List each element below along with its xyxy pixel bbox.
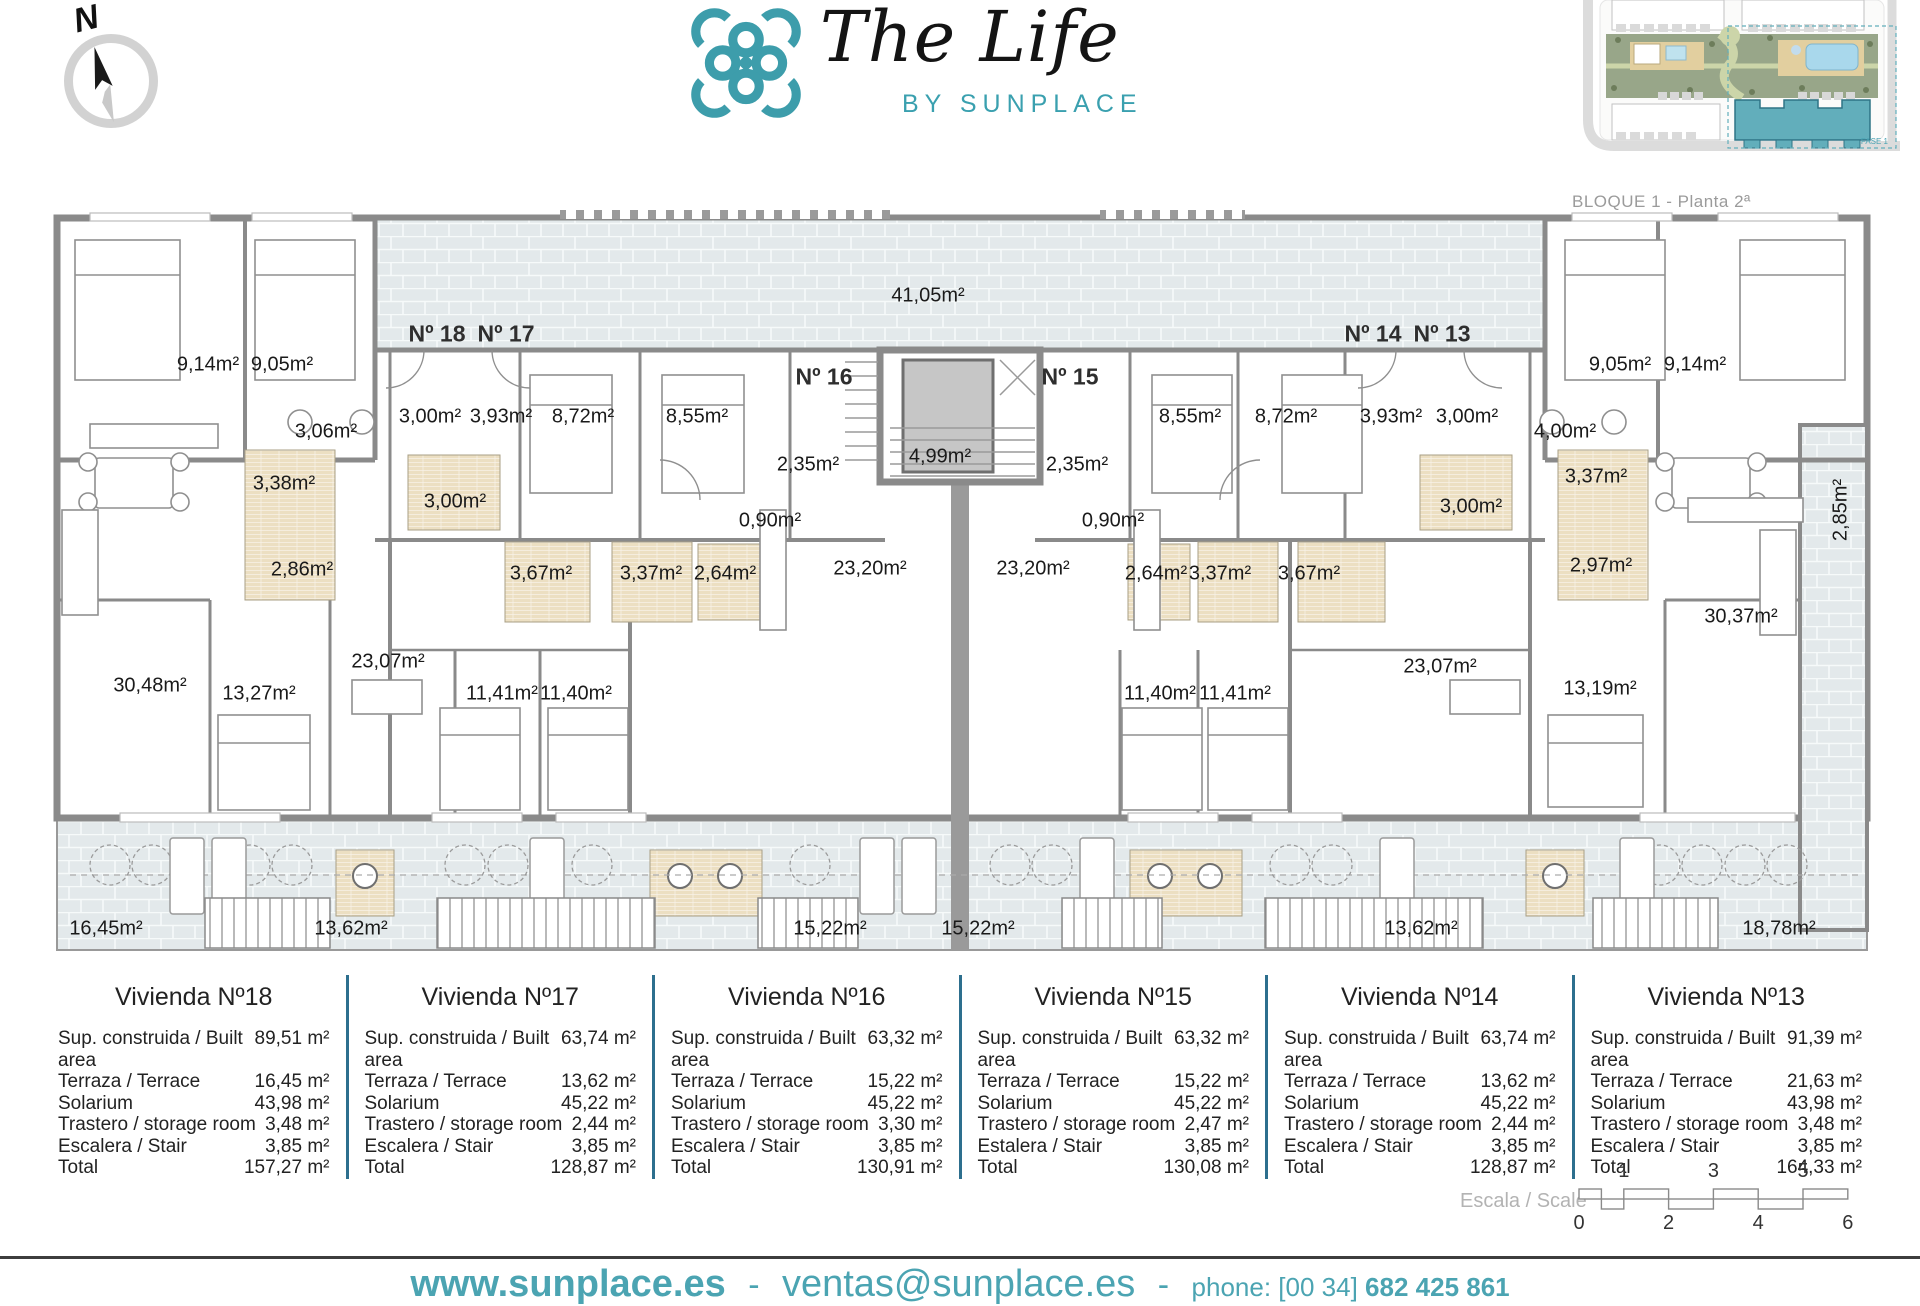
measure-label: Escalera / Stair bbox=[1591, 1136, 1720, 1158]
measure-label: Solarium bbox=[1284, 1093, 1359, 1115]
unit-title: Vivienda Nº18 bbox=[58, 983, 330, 1012]
unit-measure-row: Solarium43,98 m² bbox=[1591, 1093, 1863, 1115]
measure-value: 128,87 m² bbox=[550, 1157, 636, 1179]
scale-label: Escala / Scale bbox=[1460, 1190, 1587, 1213]
unit-measure-row: Terraza / Terrace21,63 m² bbox=[1591, 1071, 1863, 1093]
unit-summary-table: Vivienda Nº16Sup. construida / Built are… bbox=[652, 975, 959, 1179]
measure-label: Total bbox=[58, 1157, 98, 1179]
unit-measure-row: Solarium45,22 m² bbox=[1284, 1093, 1556, 1115]
measure-label: Terraza / Terrace bbox=[978, 1071, 1120, 1093]
footer: www.sunplace.es - ventas@sunplace.es - p… bbox=[0, 1263, 1920, 1306]
measure-label: Escalera / Stair bbox=[1284, 1136, 1413, 1158]
compass-needle-icon bbox=[48, 6, 168, 141]
measure-value: 3,85 m² bbox=[572, 1136, 636, 1158]
site-fase-label: FASE 1 bbox=[1861, 137, 1889, 146]
bloque-caption: BLOQUE 1 - Planta 2ª bbox=[1572, 192, 1751, 212]
logo-knot-icon bbox=[685, 2, 807, 124]
measure-label: Estalera / Stair bbox=[978, 1136, 1103, 1158]
measure-label: Trastero / storage room bbox=[1591, 1114, 1789, 1136]
measure-value: 63,32 m² bbox=[868, 1028, 943, 1071]
unit-measure-row: Solarium45,22 m² bbox=[671, 1093, 943, 1115]
measure-value: 91,39 m² bbox=[1787, 1028, 1862, 1071]
floor-plan-drawing bbox=[0, 210, 1920, 955]
unit-measure-row: Escalera / Stair3,85 m² bbox=[671, 1136, 943, 1158]
unit-measure-row: Solarium43,98 m² bbox=[58, 1093, 330, 1115]
unit-title: Vivienda Nº13 bbox=[1591, 983, 1863, 1012]
measure-value: 3,85 m² bbox=[265, 1136, 329, 1158]
measure-label: Escalera / Stair bbox=[365, 1136, 494, 1158]
unit-measure-row: Total157,27 m² bbox=[58, 1157, 330, 1179]
measure-label: Total bbox=[978, 1157, 1018, 1179]
scale-tick: 4 bbox=[1753, 1212, 1764, 1235]
measure-value: 16,45 m² bbox=[255, 1071, 330, 1093]
unit-title: Vivienda Nº14 bbox=[1284, 983, 1556, 1012]
measure-value: 130,91 m² bbox=[857, 1157, 943, 1179]
measure-label: Trastero / storage room bbox=[365, 1114, 563, 1136]
plan-side-terrace bbox=[1800, 425, 1867, 930]
unit-measure-row: Estalera / Stair3,85 m² bbox=[978, 1136, 1250, 1158]
measure-label: Sup. construida / Built area bbox=[1591, 1028, 1788, 1071]
unit-measure-row: Trastero / storage room2,44 m² bbox=[1284, 1114, 1556, 1136]
measure-value: 63,74 m² bbox=[561, 1028, 636, 1071]
measure-value: 2,44 m² bbox=[1491, 1114, 1555, 1136]
unit-measure-row: Sup. construida / Built area91,39 m² bbox=[1591, 1028, 1863, 1071]
plan-top-railing bbox=[560, 210, 890, 219]
footer-phone: phone: [00 34] 682 425 861 bbox=[1192, 1272, 1510, 1302]
measure-label: Escalera / Stair bbox=[671, 1136, 800, 1158]
measure-label: Total bbox=[671, 1157, 711, 1179]
measure-value: 2,47 m² bbox=[1185, 1114, 1249, 1136]
measure-value: 3,85 m² bbox=[878, 1136, 942, 1158]
measure-value: 3,85 m² bbox=[1185, 1136, 1249, 1158]
measure-value: 3,85 m² bbox=[1798, 1136, 1862, 1158]
unit-measure-row: Trastero / storage room2,47 m² bbox=[978, 1114, 1250, 1136]
scale-tick: 6 bbox=[1842, 1212, 1853, 1235]
unit-measure-row: Trastero / storage room3,48 m² bbox=[1591, 1114, 1863, 1136]
scale-bar-drawing bbox=[1578, 1186, 1868, 1212]
measure-label: Sup. construida / Built area bbox=[978, 1028, 1175, 1071]
measure-value: 157,27 m² bbox=[244, 1157, 330, 1179]
unit-measure-row: Escalera / Stair3,85 m² bbox=[365, 1136, 637, 1158]
measure-value: 21,63 m² bbox=[1787, 1071, 1862, 1093]
measure-label: Trastero / storage room bbox=[1284, 1114, 1482, 1136]
unit-measure-row: Solarium45,22 m² bbox=[365, 1093, 637, 1115]
footer-separator: - bbox=[748, 1266, 759, 1304]
unit-title: Vivienda Nº15 bbox=[978, 983, 1250, 1012]
unit-measure-row: Sup. construida / Built area63,74 m² bbox=[365, 1028, 637, 1071]
measure-label: Terraza / Terrace bbox=[1591, 1071, 1733, 1093]
unit-measure-row: Trastero / storage room3,30 m² bbox=[671, 1114, 943, 1136]
unit-measure-row: Trastero / storage room3,48 m² bbox=[58, 1114, 330, 1136]
measure-value: 45,22 m² bbox=[561, 1093, 636, 1115]
measure-label: Trastero / storage room bbox=[978, 1114, 1176, 1136]
measure-label: Sup. construida / Built area bbox=[58, 1028, 255, 1071]
unit-measure-row: Escalera / Stair3,85 m² bbox=[1591, 1136, 1863, 1158]
measure-label: Solarium bbox=[978, 1093, 1053, 1115]
measure-value: 130,08 m² bbox=[1163, 1157, 1249, 1179]
unit-summary-table: Vivienda Nº18Sup. construida / Built are… bbox=[42, 975, 346, 1179]
unit-title: Vivienda Nº17 bbox=[365, 983, 637, 1012]
unit-summary-table: Vivienda Nº15Sup. construida / Built are… bbox=[959, 975, 1266, 1179]
measure-value: 43,98 m² bbox=[1787, 1093, 1862, 1115]
measure-label: Terraza / Terrace bbox=[58, 1071, 200, 1093]
measure-label: Sup. construida / Built area bbox=[1284, 1028, 1481, 1071]
measure-value: 3,48 m² bbox=[1798, 1114, 1862, 1136]
measure-label: Solarium bbox=[1591, 1093, 1666, 1115]
measure-label: Terraza / Terrace bbox=[365, 1071, 507, 1093]
unit-measure-row: Trastero / storage room2,44 m² bbox=[365, 1114, 637, 1136]
measure-label: Total bbox=[365, 1157, 405, 1179]
measure-value: 13,62 m² bbox=[1481, 1071, 1556, 1093]
measure-label: Total bbox=[1284, 1157, 1324, 1179]
measure-label: Escalera / Stair bbox=[58, 1136, 187, 1158]
footer-email-link[interactable]: ventas@sunplace.es bbox=[782, 1263, 1135, 1305]
footer-separator: - bbox=[1158, 1266, 1169, 1304]
measure-value: 43,98 m² bbox=[255, 1093, 330, 1115]
measure-value: 89,51 m² bbox=[255, 1028, 330, 1071]
unit-summary-tables: Vivienda Nº18Sup. construida / Built are… bbox=[42, 975, 1878, 1179]
scale-tick: 2 bbox=[1663, 1212, 1674, 1235]
unit-measure-row: Sup. construida / Built area63,32 m² bbox=[978, 1028, 1250, 1071]
measure-value: 3,30 m² bbox=[878, 1114, 942, 1136]
unit-title: Vivienda Nº16 bbox=[671, 983, 943, 1012]
unit-summary-table: Vivienda Nº14Sup. construida / Built are… bbox=[1265, 975, 1572, 1179]
unit-measure-row: Escalera / Stair3,85 m² bbox=[1284, 1136, 1556, 1158]
scale-tick: 5 bbox=[1797, 1160, 1808, 1183]
unit-measure-row: Total130,08 m² bbox=[978, 1157, 1250, 1179]
unit-measure-row: Terraza / Terrace15,22 m² bbox=[671, 1071, 943, 1093]
scale-tick: 1 bbox=[1618, 1160, 1629, 1183]
site-garden bbox=[1606, 26, 1878, 100]
measure-value: 63,74 m² bbox=[1481, 1028, 1556, 1071]
plan-central-spine-wall bbox=[951, 472, 969, 950]
measure-label: Solarium bbox=[365, 1093, 440, 1115]
measure-label: Trastero / storage room bbox=[58, 1114, 256, 1136]
measure-value: 45,22 m² bbox=[1481, 1093, 1556, 1115]
measure-value: 3,48 m² bbox=[265, 1114, 329, 1136]
measure-label: Sup. construida / Built area bbox=[365, 1028, 562, 1071]
measure-value: 3,85 m² bbox=[1491, 1136, 1555, 1158]
unit-measure-row: Sup. construida / Built area63,74 m² bbox=[1284, 1028, 1556, 1071]
site-plan-thumbnail: FASE 1 bbox=[1570, 0, 1906, 152]
measure-value: 63,32 m² bbox=[1174, 1028, 1249, 1071]
site-plan-drawing: FASE 1 bbox=[1570, 0, 1906, 152]
measure-value: 13,62 m² bbox=[561, 1071, 636, 1093]
measure-label: Trastero / storage room bbox=[671, 1114, 869, 1136]
unit-measure-row: Terraza / Terrace15,22 m² bbox=[978, 1071, 1250, 1093]
measure-label: Terraza / Terrace bbox=[1284, 1071, 1426, 1093]
unit-measure-row: Total130,91 m² bbox=[671, 1157, 943, 1179]
unit-summary-table: Vivienda Nº17Sup. construida / Built are… bbox=[346, 975, 653, 1179]
logo: The Life BY SUNPLACE bbox=[680, 0, 1150, 130]
measure-value: 2,44 m² bbox=[572, 1114, 636, 1136]
measure-label: Terraza / Terrace bbox=[671, 1071, 813, 1093]
footer-divider bbox=[0, 1256, 1920, 1259]
footer-website-link[interactable]: www.sunplace.es bbox=[410, 1263, 725, 1305]
unit-summary-table: Vivienda Nº13Sup. construida / Built are… bbox=[1572, 975, 1879, 1179]
unit-measure-row: Sup. construida / Built area89,51 m² bbox=[58, 1028, 330, 1071]
measure-value: 15,22 m² bbox=[1174, 1071, 1249, 1093]
measure-label: Sup. construida / Built area bbox=[671, 1028, 868, 1071]
unit-measure-row: Terraza / Terrace16,45 m² bbox=[58, 1071, 330, 1093]
unit-measure-row: Terraza / Terrace13,62 m² bbox=[1284, 1071, 1556, 1093]
logo-subtitle: BY SUNPLACE bbox=[902, 90, 1143, 119]
measure-label: Solarium bbox=[671, 1093, 746, 1115]
unit-measure-row: Total128,87 m² bbox=[365, 1157, 637, 1179]
scale-tick: 0 bbox=[1573, 1212, 1584, 1235]
logo-title: The Life bbox=[820, 0, 1120, 78]
plan-top-solarium bbox=[375, 218, 1545, 350]
measure-value: 15,22 m² bbox=[868, 1071, 943, 1093]
measure-label: Solarium bbox=[58, 1093, 133, 1115]
scale-tick: 3 bbox=[1708, 1160, 1719, 1183]
measure-value: 45,22 m² bbox=[1174, 1093, 1249, 1115]
unit-measure-row: Solarium45,22 m² bbox=[978, 1093, 1250, 1115]
unit-measure-row: Terraza / Terrace13,62 m² bbox=[365, 1071, 637, 1093]
unit-measure-row: Sup. construida / Built area63,32 m² bbox=[671, 1028, 943, 1071]
measure-value: 45,22 m² bbox=[868, 1093, 943, 1115]
north-compass: N bbox=[48, 6, 168, 141]
scale-bar: Escala / Scale 1350246 bbox=[1460, 1160, 1900, 1246]
unit-measure-row: Escalera / Stair3,85 m² bbox=[58, 1136, 330, 1158]
